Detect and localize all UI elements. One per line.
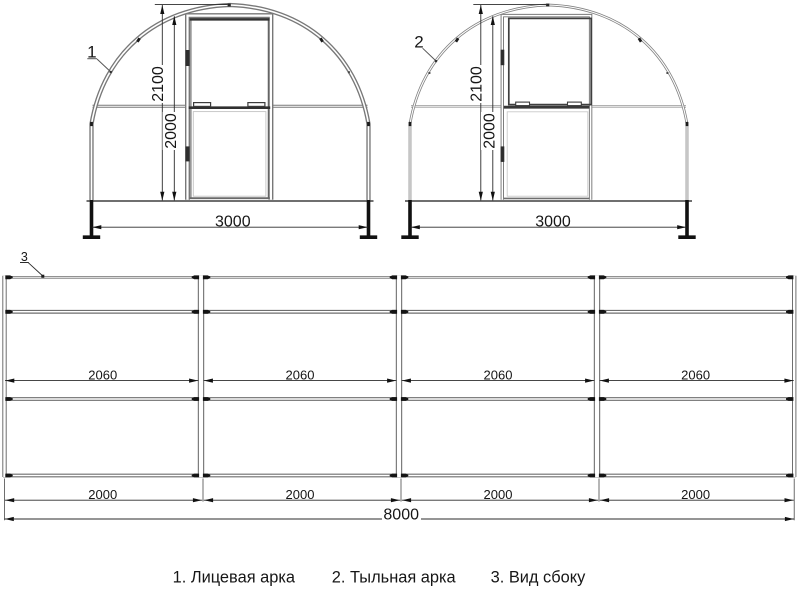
svg-text:2000: 2000	[484, 487, 513, 502]
svg-text:2060: 2060	[88, 368, 117, 383]
svg-text:2: 2	[414, 33, 423, 52]
svg-text:2000: 2000	[163, 113, 180, 149]
svg-text:2000: 2000	[286, 487, 315, 502]
svg-text:2100: 2100	[468, 66, 485, 102]
svg-text:2060: 2060	[484, 368, 513, 383]
svg-text:3000: 3000	[215, 213, 251, 230]
svg-text:2060: 2060	[286, 368, 315, 383]
svg-text:3: 3	[21, 250, 28, 264]
svg-text:2000: 2000	[482, 113, 499, 149]
svg-text:2100: 2100	[150, 66, 167, 102]
svg-text:8000: 8000	[383, 506, 419, 523]
svg-text:2060: 2060	[681, 368, 710, 383]
svg-text:3. Вид сбоку: 3. Вид сбоку	[491, 568, 586, 586]
svg-text:2000: 2000	[681, 487, 710, 502]
svg-text:2. Тыльная арка: 2. Тыльная арка	[332, 568, 457, 586]
svg-text:1. Лицевая арка: 1. Лицевая арка	[173, 568, 296, 586]
svg-text:2000: 2000	[88, 487, 117, 502]
svg-text:3000: 3000	[535, 213, 571, 230]
